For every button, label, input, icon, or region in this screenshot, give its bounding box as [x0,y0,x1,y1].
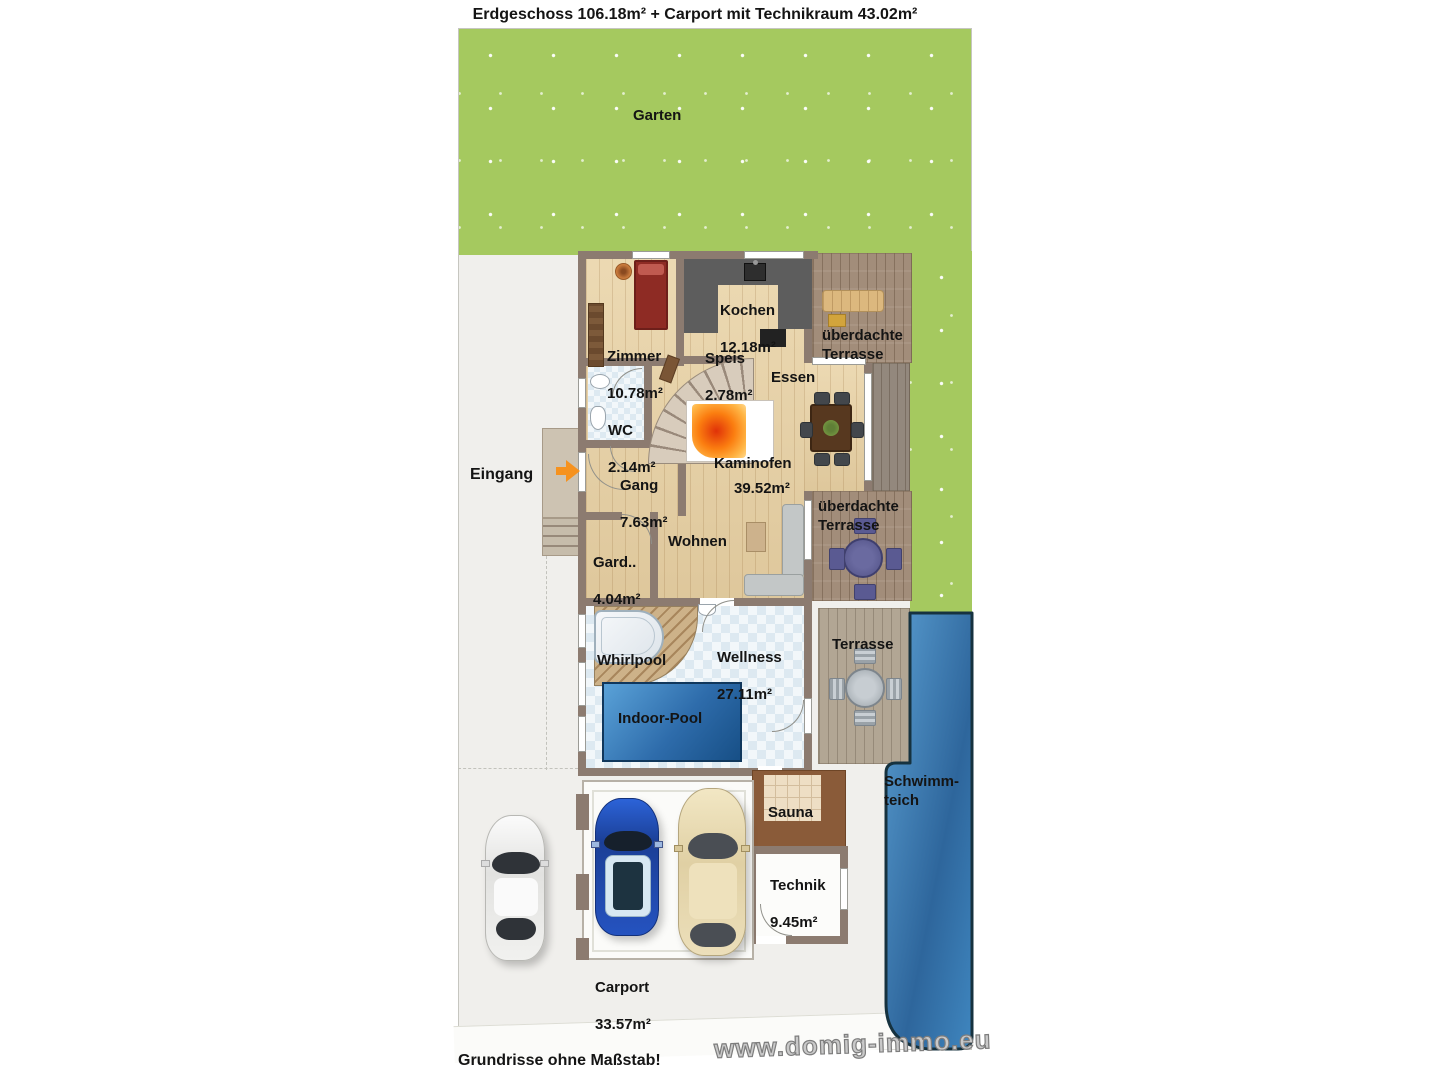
garden-strip-right [910,251,972,613]
dining-table [810,404,852,452]
entrance-arrow-icon [556,460,582,482]
patio-side-table [828,314,846,327]
room-size: 4.04m² [593,591,641,610]
dining-chair [814,392,830,405]
patio-chair [829,678,845,700]
deck-walkway [872,363,910,491]
room-name: Gang [620,477,668,496]
car-beige [678,788,746,956]
pond-label: Schwimm- teich [884,773,959,811]
room-label-wellness: Wellness 27.11m² [717,630,782,724]
table-plant [823,420,839,436]
room-name: Technik [770,877,826,896]
room-size: 10.78m² [607,385,663,404]
window [840,868,848,910]
terrace-middle-label: überdachte Terrasse [818,498,899,536]
room-size: 7.63m² [620,514,668,533]
terrace-table [843,538,883,578]
room-label-kaminofen: Kaminofen [714,455,792,474]
terrace-south-label: Terrasse [832,636,893,655]
dining-chair [814,453,830,466]
entrance-steps [542,518,580,556]
sofa [744,574,804,596]
room-name: Zimmer [607,348,663,367]
car-white [485,815,545,961]
terrace-chair [854,584,876,600]
room-size: 27.11m² [717,686,782,705]
window [578,378,586,408]
wardrobe [588,303,604,367]
room-label-indoor-pool: Indoor-Pool [618,710,702,729]
patio-chair [854,710,876,726]
garden-label: Garten [633,107,681,126]
window [578,614,586,648]
room-name: Gard.. [593,554,641,573]
kitchen-counter [778,285,812,329]
room-label-technik: Technik 9.45m² [770,858,826,952]
window [804,500,812,560]
kitchen-counter [684,285,718,333]
wall-segment [676,259,684,366]
dining-chair [800,422,813,438]
terrace-north-label: überdachte Terrasse [822,327,903,365]
window [804,698,812,734]
window [864,373,872,481]
room-label-essen: Essen [771,369,815,388]
floor-plan-page: Erdgeschoss 106.18m² + Carport mit Techn… [0,0,1436,1077]
room-label-wohnen: Wohnen [668,533,727,552]
room-name: Wellness [717,649,782,668]
window [632,251,670,259]
bed [634,260,668,330]
room-size: 9.45m² [770,914,826,933]
sun-lounger [822,290,884,312]
patio-table [845,668,885,708]
toilet [590,406,606,430]
room-label-garderobe: Gard.. 4.04m² [593,535,641,629]
kitchen-sink [744,263,766,281]
potted-plant [615,263,632,280]
entrance-label: Eingang [470,465,533,485]
window [578,716,586,752]
boundary-dashed-line [546,556,547,770]
carport-post [576,874,589,910]
carport-post [576,938,589,960]
wall-segment [748,846,848,854]
garden-area [459,29,971,255]
window [744,251,804,259]
room-label-sauna: Sauna [768,804,813,823]
room-name: Carport [595,979,651,998]
room-label-whirlpool: Whirlpool [597,652,666,671]
room-label-carport: Carport 33.57m² [595,960,651,1054]
terrace-chair [829,548,845,570]
room-name: Speis [705,350,753,369]
room-size: 2.78m² [705,387,753,406]
sofa [782,504,804,578]
window [578,662,586,706]
carport-post [576,794,589,830]
dining-chair [834,392,850,405]
terrace-chair [886,548,902,570]
plan-title: Erdgeschoss 106.18m² + Carport mit Techn… [455,5,935,25]
room-name: Kochen [720,302,776,321]
side-table [746,522,766,552]
footer-note: Grundrisse ohne Maßstab! [458,1051,661,1071]
room-size-kaminofen: 39.52m² [734,480,790,499]
swim-pond [880,611,975,1053]
room-label-speis: Speis 2.78m² [705,331,753,425]
car-blue [595,798,659,936]
boundary-dashed-line [458,768,578,769]
room-size: 33.57m² [595,1016,651,1035]
dining-chair [834,453,850,466]
wall-segment [586,512,622,520]
dining-chair [851,422,864,438]
room-name: WC [608,422,656,441]
